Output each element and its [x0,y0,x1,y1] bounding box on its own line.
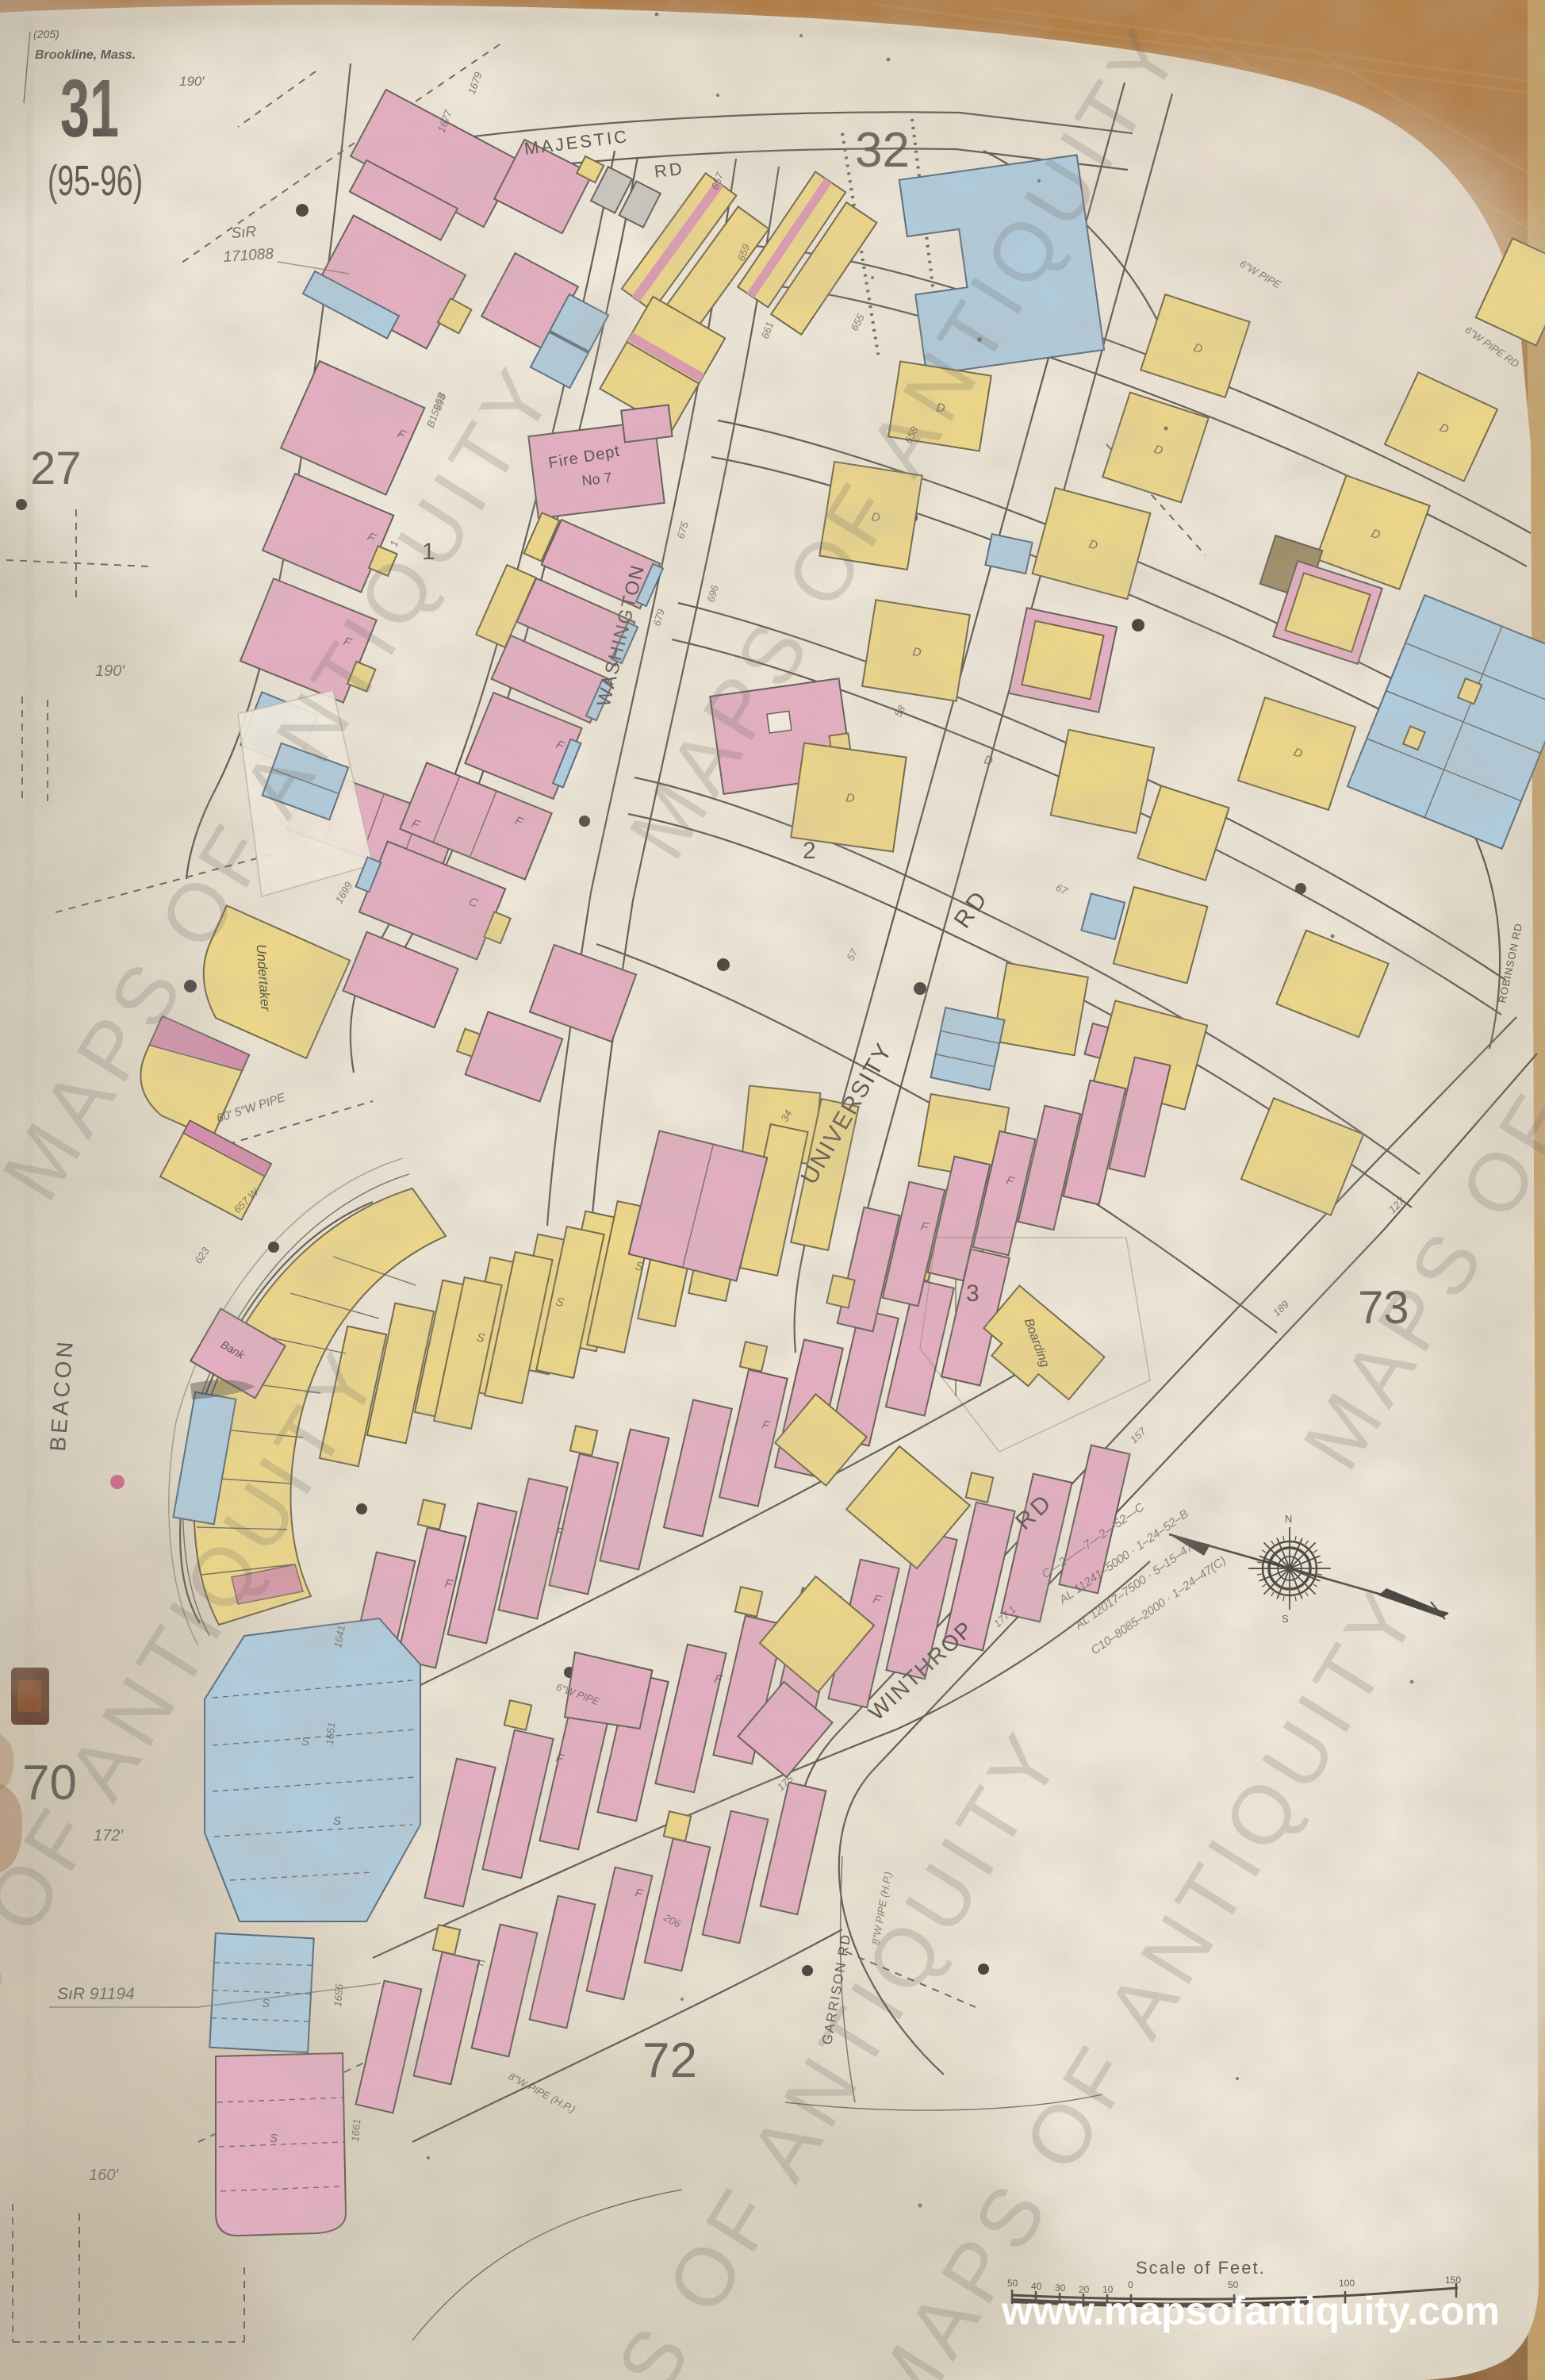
svg-text:www.mapsofantiquity.com: www.mapsofantiquity.com [1001,2289,1500,2333]
